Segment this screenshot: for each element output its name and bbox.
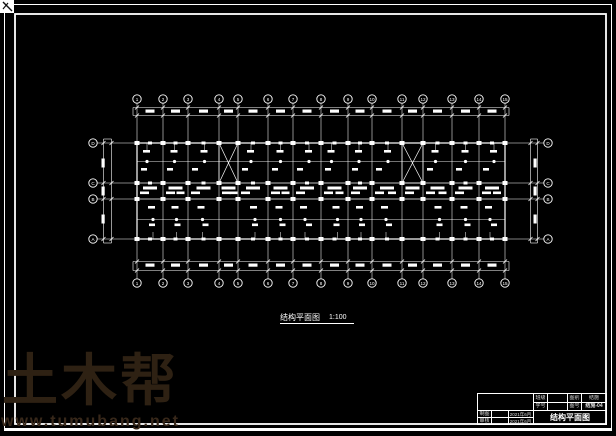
axis-bubble-label: 2 bbox=[162, 97, 165, 102]
column bbox=[148, 142, 152, 145]
column bbox=[135, 181, 140, 185]
beam-label-blob bbox=[274, 187, 288, 190]
column bbox=[477, 237, 482, 241]
column bbox=[251, 238, 255, 241]
dim-text-blob bbox=[224, 110, 233, 113]
axis-bubble-label: 13 bbox=[449, 97, 455, 102]
column bbox=[400, 237, 405, 241]
axis-bubble-label: 15 bbox=[502, 97, 508, 102]
column bbox=[186, 237, 191, 241]
column bbox=[450, 197, 455, 201]
titleblock-category-label: 图别 bbox=[568, 395, 581, 402]
column bbox=[436, 238, 440, 241]
titleblock-drawing-title: 结构平面图 bbox=[534, 411, 606, 424]
beam-label-blob bbox=[431, 187, 445, 190]
beam-label-blob bbox=[246, 187, 260, 190]
axis-bubble-label: 6 bbox=[267, 281, 270, 286]
beam-label-blob bbox=[351, 192, 360, 195]
beam-label-blob bbox=[297, 168, 303, 171]
beam-label-blob bbox=[167, 168, 173, 171]
beam-label-blob bbox=[380, 187, 394, 190]
beam-label-blob bbox=[376, 168, 382, 171]
column bbox=[358, 238, 362, 241]
column bbox=[450, 181, 455, 185]
beam-label-blob bbox=[356, 206, 363, 209]
beam-label-blob bbox=[201, 150, 208, 153]
beam-label-blob bbox=[353, 187, 367, 190]
column bbox=[421, 197, 426, 201]
dim-text-blob bbox=[146, 264, 155, 267]
axis-bubble-label: A bbox=[546, 237, 550, 242]
column bbox=[236, 197, 241, 201]
axis-bubble-label: 10 bbox=[369, 97, 375, 102]
beam-label-blob bbox=[490, 150, 497, 153]
dim-text-blob bbox=[276, 264, 285, 267]
beam-label-blob bbox=[280, 224, 286, 227]
column-dot bbox=[279, 218, 282, 221]
dim-text-blob bbox=[356, 110, 365, 113]
column-dot bbox=[173, 160, 176, 163]
beam-label-blob bbox=[300, 206, 307, 209]
beam-label-blob bbox=[336, 192, 344, 195]
axis-bubble-label: 4 bbox=[218, 281, 221, 286]
beam-label-blob bbox=[482, 192, 491, 195]
column bbox=[291, 197, 296, 201]
column bbox=[385, 238, 389, 241]
axis-bubble-label: B bbox=[546, 197, 549, 202]
column bbox=[436, 142, 440, 145]
axis-bubble-label: 1 bbox=[136, 281, 139, 286]
axis-bubble-label: 4 bbox=[218, 97, 221, 102]
dim-text-blob bbox=[408, 264, 417, 267]
column bbox=[346, 197, 351, 201]
column-axes: 1122334455667788991010111112121313141415… bbox=[133, 95, 509, 287]
dim-text-blob bbox=[199, 264, 208, 267]
column bbox=[186, 181, 191, 185]
axis-bubble-label: B bbox=[91, 197, 94, 202]
axis-bubble-label: 15 bbox=[502, 281, 508, 286]
beam-label-blob bbox=[459, 187, 473, 190]
dim-text-blob bbox=[461, 264, 470, 267]
beam-label-blob bbox=[177, 192, 185, 195]
column-dot bbox=[464, 218, 467, 221]
dim-text-blob bbox=[534, 187, 537, 196]
beam-label-blob bbox=[406, 187, 420, 190]
beam-label-blob bbox=[252, 224, 258, 227]
column bbox=[450, 237, 455, 241]
beam-label-blob bbox=[149, 224, 155, 227]
beam-label-blob bbox=[222, 187, 236, 190]
column bbox=[161, 181, 166, 185]
dim-text-blob bbox=[534, 159, 537, 168]
bay-annotations bbox=[140, 143, 501, 239]
column bbox=[346, 237, 351, 241]
dim-text-blob bbox=[249, 110, 258, 113]
beam-label-blob bbox=[359, 224, 365, 227]
column bbox=[291, 141, 296, 145]
beam-label-blob bbox=[166, 192, 175, 195]
axis-bubble-label: 12 bbox=[420, 97, 426, 102]
column bbox=[161, 141, 166, 145]
beam-label-blob bbox=[230, 192, 238, 195]
column bbox=[319, 197, 324, 201]
column-dot bbox=[279, 160, 282, 163]
column bbox=[251, 182, 255, 185]
column-dot bbox=[336, 218, 339, 221]
axis-bubble-label: 7 bbox=[292, 281, 295, 286]
beam-label-blob bbox=[485, 206, 492, 209]
column-dot bbox=[203, 160, 206, 163]
column bbox=[490, 142, 494, 145]
beam-label-blob bbox=[328, 150, 335, 153]
beam-label-blob bbox=[461, 206, 468, 209]
column bbox=[148, 182, 152, 185]
dimension-band bbox=[102, 139, 114, 243]
titleblock-divider bbox=[547, 394, 548, 410]
watermark-url: www.tumubang.net bbox=[1, 413, 180, 431]
beam-label-blob bbox=[140, 192, 149, 195]
column bbox=[358, 142, 362, 145]
beam-label-blob bbox=[250, 206, 257, 209]
column bbox=[305, 238, 309, 241]
column bbox=[202, 238, 206, 241]
column-dot bbox=[434, 160, 437, 163]
column-dot bbox=[330, 160, 333, 163]
column bbox=[477, 181, 482, 185]
axis-bubble-label: 6 bbox=[267, 97, 270, 102]
column bbox=[503, 197, 508, 201]
column-dot bbox=[307, 160, 310, 163]
axis-bubble-label: 10 bbox=[369, 281, 375, 286]
beam-label-blob bbox=[352, 168, 358, 171]
column-dot bbox=[145, 160, 148, 163]
column-dot bbox=[151, 218, 154, 221]
beam-label-blob bbox=[355, 150, 362, 153]
caption-scale: 1:100 bbox=[329, 312, 347, 323]
column bbox=[490, 238, 494, 241]
dim-text-blob bbox=[433, 264, 442, 267]
column bbox=[503, 237, 508, 241]
beam-label-blob bbox=[456, 168, 462, 171]
column bbox=[266, 197, 271, 201]
column bbox=[477, 141, 482, 145]
column-dot bbox=[438, 218, 441, 221]
axis-bubble-label: 14 bbox=[476, 281, 482, 286]
beam-label-blob bbox=[388, 192, 396, 195]
beam-label-blob bbox=[384, 150, 391, 153]
beam-label-blob bbox=[405, 192, 414, 195]
column bbox=[319, 181, 324, 185]
axis-bubble-label: 3 bbox=[187, 281, 190, 286]
dim-text-blob bbox=[303, 264, 312, 267]
column-dot bbox=[201, 218, 204, 221]
beam-label-blob bbox=[271, 192, 280, 195]
dim-text-blob bbox=[146, 110, 155, 113]
column bbox=[319, 141, 324, 145]
beam-label-blob bbox=[435, 206, 442, 209]
column bbox=[503, 141, 508, 145]
axis-bubble-label: 13 bbox=[449, 281, 455, 286]
beam-label-blob bbox=[491, 224, 497, 227]
beam-label-blob bbox=[324, 192, 333, 195]
axis-bubble-label: 5 bbox=[237, 281, 240, 286]
column bbox=[291, 181, 296, 185]
column bbox=[135, 237, 140, 241]
column bbox=[174, 142, 178, 145]
column bbox=[266, 237, 271, 241]
beam-label-blob bbox=[148, 206, 155, 209]
column bbox=[305, 142, 309, 145]
beam-label-blob bbox=[247, 150, 254, 153]
dim-text-blob bbox=[433, 110, 442, 113]
titleblock-check-label: 审核 bbox=[478, 418, 491, 425]
column bbox=[135, 141, 140, 145]
column-dot bbox=[384, 218, 387, 221]
column bbox=[202, 182, 206, 185]
beam-label-blob bbox=[171, 150, 178, 153]
column-dot bbox=[357, 160, 360, 163]
dim-text-blob bbox=[171, 110, 180, 113]
axis-bubble-label: C bbox=[546, 181, 550, 186]
beam-label-blob bbox=[437, 224, 443, 227]
titleblock-number-value: 结施-04 bbox=[582, 403, 606, 410]
watermark-logo: 土木帮 bbox=[2, 350, 179, 412]
column bbox=[400, 197, 405, 201]
column bbox=[251, 142, 255, 145]
beam-label-blob bbox=[455, 192, 464, 195]
beam-label-blob bbox=[172, 206, 179, 209]
beam-label-blob bbox=[277, 150, 284, 153]
column bbox=[174, 238, 178, 241]
dim-text-blob bbox=[102, 215, 105, 224]
dim-text-blob bbox=[276, 110, 285, 113]
column bbox=[186, 197, 191, 201]
titleblock-class-label: 班级 bbox=[534, 395, 547, 402]
dim-text-blob bbox=[383, 110, 392, 113]
titleblock-check-date: 2021年6月 bbox=[508, 418, 533, 425]
beam-label-blob bbox=[143, 150, 150, 153]
column bbox=[450, 141, 455, 145]
beam-label-blob bbox=[325, 168, 331, 171]
dim-text-blob bbox=[102, 159, 105, 168]
beam-label-blob bbox=[375, 192, 384, 195]
titleblock-category-value: 结施 bbox=[582, 395, 606, 402]
beam-label-blob bbox=[197, 187, 211, 190]
beam-label-blob bbox=[485, 187, 499, 190]
beam-label-blob bbox=[141, 168, 147, 171]
column bbox=[358, 182, 362, 185]
beam-label-blob bbox=[381, 206, 388, 209]
beam-label-blob bbox=[143, 187, 157, 190]
column bbox=[291, 237, 296, 241]
column bbox=[370, 197, 375, 201]
axis-bubble-label: 9 bbox=[347, 281, 350, 286]
axis-bubble-label: 7 bbox=[292, 97, 295, 102]
column-dot bbox=[488, 218, 491, 221]
beam-label-blob bbox=[386, 224, 392, 227]
dim-text-blob bbox=[249, 264, 258, 267]
beam-label-blob bbox=[242, 168, 248, 171]
beam-label-blob bbox=[191, 192, 200, 195]
column bbox=[161, 237, 166, 241]
column bbox=[370, 141, 375, 145]
axis-bubble-label: 8 bbox=[320, 281, 323, 286]
dim-text-blob bbox=[408, 110, 417, 113]
beam-label-blob bbox=[272, 168, 278, 171]
titleblock-drawn-date: 2021年6月 bbox=[508, 411, 533, 418]
caption-title: 结构平面图 bbox=[280, 312, 320, 323]
dim-text-blob bbox=[330, 264, 339, 267]
beam-label-blob bbox=[306, 224, 312, 227]
dim-text-blob bbox=[461, 110, 470, 113]
beam-label-blob bbox=[169, 187, 183, 190]
drawing-sheet: 1122334455667788991010111112121313141415… bbox=[0, 0, 616, 436]
axis-bubble-label: 5 bbox=[237, 97, 240, 102]
beam-label-blob bbox=[241, 192, 250, 195]
axis-bubble-label: D bbox=[546, 141, 550, 146]
column bbox=[217, 197, 222, 201]
axis-bubble-label: 1 bbox=[136, 97, 139, 102]
column-dot bbox=[386, 160, 389, 163]
beam-label-blob bbox=[276, 206, 283, 209]
beam-label-blob bbox=[427, 168, 433, 171]
beam-label-blob bbox=[175, 224, 181, 227]
row-axes: DDCCBBAA bbox=[89, 139, 552, 243]
dim-text-blob bbox=[383, 264, 392, 267]
column-dot bbox=[175, 218, 178, 221]
axis-bubble-label: C bbox=[91, 181, 95, 186]
dim-text-blob bbox=[102, 187, 105, 196]
column bbox=[236, 237, 241, 241]
column bbox=[148, 238, 152, 241]
beam-label-blob bbox=[328, 187, 342, 190]
dim-text-blob bbox=[356, 264, 365, 267]
column bbox=[305, 182, 309, 185]
dim-text-blob bbox=[303, 110, 312, 113]
column bbox=[464, 182, 468, 185]
column bbox=[266, 181, 271, 185]
titleblock-number-label: 图号 bbox=[568, 403, 581, 410]
column bbox=[385, 142, 389, 145]
axis-bubble-label: 11 bbox=[400, 97, 405, 102]
dim-text-blob bbox=[224, 264, 233, 267]
column bbox=[333, 142, 337, 145]
axis-bubble-label: 9 bbox=[347, 97, 350, 102]
beam-label-blob bbox=[192, 168, 198, 171]
beam-label-blob bbox=[296, 192, 305, 195]
beam-label-blob bbox=[198, 206, 205, 209]
beam-label-blob bbox=[203, 224, 209, 227]
dim-text-blob bbox=[488, 264, 497, 267]
beam-label-blob bbox=[483, 168, 489, 171]
dimension-band bbox=[529, 139, 540, 243]
title-block: 班级 图别 结施 学号 图号 结施-04 制图 2021年6月 审核 2021年… bbox=[477, 393, 607, 425]
beam-label-blob bbox=[333, 206, 340, 209]
axis-bubble-label: 2 bbox=[162, 281, 165, 286]
dim-text-blob bbox=[199, 110, 208, 113]
column-dot bbox=[492, 160, 495, 163]
beam-label-blob bbox=[334, 224, 340, 227]
column bbox=[135, 197, 140, 201]
axis-bubble-label: 12 bbox=[420, 281, 426, 286]
column bbox=[186, 141, 191, 145]
column bbox=[477, 197, 482, 201]
beam-label-blob bbox=[282, 192, 290, 195]
column bbox=[421, 237, 426, 241]
dim-text-blob bbox=[488, 110, 497, 113]
column bbox=[319, 237, 324, 241]
axis-bubble-label: 11 bbox=[400, 281, 405, 286]
axis-bubble-label: 14 bbox=[476, 97, 482, 102]
column bbox=[161, 197, 166, 201]
column bbox=[333, 238, 337, 241]
beam-label-blob bbox=[300, 187, 314, 190]
column-dot bbox=[464, 160, 467, 163]
drawing-caption: 结构平面图 1:100 bbox=[280, 311, 354, 324]
column bbox=[370, 181, 375, 185]
beam-label-blob bbox=[493, 192, 501, 195]
axis-bubble-label: D bbox=[91, 141, 95, 146]
beam-label-blob bbox=[462, 150, 469, 153]
beam-label-blob bbox=[305, 150, 312, 153]
column bbox=[346, 141, 351, 145]
column bbox=[202, 142, 206, 145]
beam-label-blob bbox=[426, 192, 435, 195]
beam-label-blob bbox=[465, 224, 471, 227]
column-dot bbox=[303, 218, 306, 221]
column bbox=[266, 141, 271, 145]
axis-bubble-label: A bbox=[91, 237, 95, 242]
column-dot bbox=[253, 218, 256, 221]
column bbox=[503, 181, 508, 185]
axis-bubble-label: 8 bbox=[320, 97, 323, 102]
titleblock-divider bbox=[491, 410, 492, 424]
beam-label-blob bbox=[432, 150, 439, 153]
titleblock-id-label: 学号 bbox=[534, 403, 547, 410]
column bbox=[370, 237, 375, 241]
column-dot bbox=[359, 218, 362, 221]
dim-text-blob bbox=[171, 264, 180, 267]
column bbox=[346, 181, 351, 185]
axis-bubble-label: 3 bbox=[187, 97, 190, 102]
dim-text-blob bbox=[330, 110, 339, 113]
dim-text-blob bbox=[534, 215, 537, 224]
column-dot bbox=[249, 160, 252, 163]
titleblock-drawn-label: 制图 bbox=[478, 411, 491, 418]
column bbox=[217, 237, 222, 241]
beam-label-blob bbox=[439, 192, 447, 195]
